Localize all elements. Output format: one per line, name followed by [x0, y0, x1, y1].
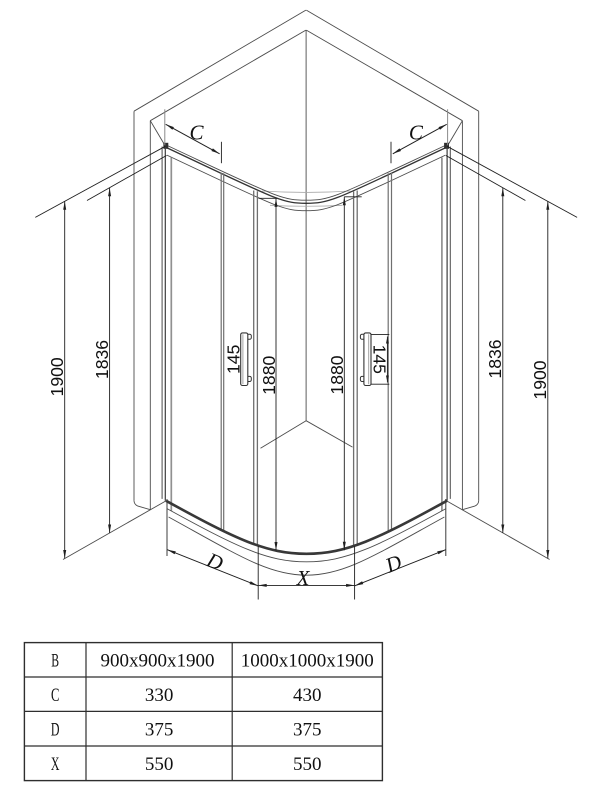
svg-text:D: D: [203, 547, 227, 575]
svg-text:1880: 1880: [327, 355, 347, 394]
svg-text:X: X: [296, 566, 311, 590]
svg-text:550: 550: [145, 754, 174, 775]
svg-text:B: B: [51, 651, 59, 672]
svg-text:X: X: [51, 754, 60, 775]
svg-text:1836: 1836: [92, 340, 112, 379]
svg-text:1880: 1880: [259, 356, 279, 395]
svg-text:C: C: [51, 685, 59, 706]
svg-text:1900: 1900: [47, 357, 67, 396]
svg-text:1900: 1900: [530, 360, 550, 399]
svg-text:550: 550: [293, 754, 322, 775]
svg-text:375: 375: [145, 719, 174, 740]
svg-text:C: C: [409, 120, 424, 144]
svg-text:330: 330: [145, 685, 174, 706]
svg-text:900x900x1900: 900x900x1900: [101, 651, 215, 672]
svg-text:145: 145: [224, 344, 244, 374]
svg-text:1836: 1836: [485, 339, 505, 378]
svg-text:430: 430: [293, 685, 322, 706]
svg-text:1000x1000x1900: 1000x1000x1900: [241, 651, 374, 672]
svg-text:C: C: [189, 120, 204, 144]
svg-text:D: D: [51, 719, 60, 740]
svg-text:375: 375: [293, 719, 322, 740]
svg-text:145: 145: [370, 345, 390, 375]
